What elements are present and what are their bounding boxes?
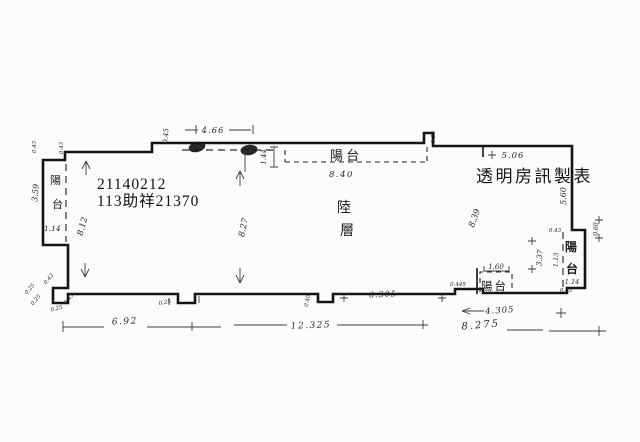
dim-left-balcony-bottom: 1.14 (44, 224, 61, 233)
dim-arrow-mid-down (236, 268, 244, 283)
balcony-left-char2: 台 (52, 197, 63, 211)
ink-smudge (240, 144, 258, 157)
dim-right-balcony-inner: 1.13 (552, 253, 561, 268)
tick-label: 0.43 (549, 228, 562, 234)
dim-line-bottom-right-total (507, 326, 606, 336)
dim-right-balcony-outer: 3.37 (534, 249, 544, 267)
tick-label: 0.43 (32, 140, 38, 153)
floor-label-char1: 陸 (337, 200, 351, 216)
dim-right-balcony-depth: 0.60 (593, 222, 600, 236)
dim-bottom-right-total: 8.275 (461, 318, 500, 332)
tick-label: 0.25 (24, 282, 37, 296)
dim-left-balcony-height: 3.59 (30, 184, 41, 203)
dim-arrow-left-down (81, 263, 89, 277)
dim-right-wall: 5.60 (559, 187, 569, 205)
dim-bottom-left: 6.92 (112, 316, 139, 327)
dim-line-bottom-left (63, 321, 221, 332)
dim-top-balcony-width: 8.40 (329, 170, 354, 180)
case-ref: 113助祥21370 (97, 192, 199, 210)
balcony-right-char2: 台 (566, 261, 578, 276)
floor-plan-svg: 21140212 113助祥21370 透明房訊製表 陸 層 陽 台 陽 台 陽… (0, 0, 640, 442)
dim-bottom-total: 12.325 (291, 320, 332, 331)
dim-arrow-left-up (82, 161, 90, 175)
dim-top-right: 5.06 (502, 151, 525, 161)
dim-mid-height: 8.27 (237, 217, 251, 238)
doc-number: 21140212 (97, 176, 166, 193)
dim-right-height: 8.39 (467, 207, 483, 229)
tick-label: 0.25 (158, 299, 172, 307)
balcony-left-char1: 陽 (50, 174, 61, 187)
dim-bottom-right: 4.305 (484, 305, 515, 317)
tick-label: 0.40 (304, 294, 312, 308)
floor-label-char2: 層 (340, 224, 354, 239)
balcony-bottom-label: 陽台 (481, 279, 508, 293)
dim-left-wall: 8.12 (76, 216, 91, 237)
tick-label: 0.45 (560, 288, 573, 294)
tick-label: 0.25 (50, 304, 64, 313)
dim-bottom-inner: 6.305 (369, 289, 397, 299)
dim-top-left: 4.66 (201, 126, 225, 136)
dim-top-depth: 1.44 (260, 149, 268, 165)
publisher-stamp: 透明房訊製表 (476, 167, 593, 186)
tick-label: 0.43 (43, 272, 56, 286)
dim-arrow-mid-up (236, 150, 245, 186)
dim-tick-top-right (488, 151, 496, 159)
balcony-right-char1: 陽 (565, 240, 577, 254)
balcony-top-label: 陽 台 (330, 148, 359, 163)
tick-label: 0.25 (30, 293, 43, 307)
dim-small-balcony-offset: 0.445 (450, 282, 466, 288)
dim-small-balcony-width: 1.60 (488, 263, 504, 271)
dim-top-step: 0.45 (162, 127, 171, 144)
floorplan-sheet: 21140212 113助祥21370 透明房訊製表 陸 層 陽 台 陽 台 陽… (0, 0, 640, 442)
dim-top-bump: 0.25 (431, 130, 437, 143)
tick-label: 0.43 (59, 141, 65, 154)
dim-right-balcony-bottom: 1.14 (565, 278, 579, 286)
